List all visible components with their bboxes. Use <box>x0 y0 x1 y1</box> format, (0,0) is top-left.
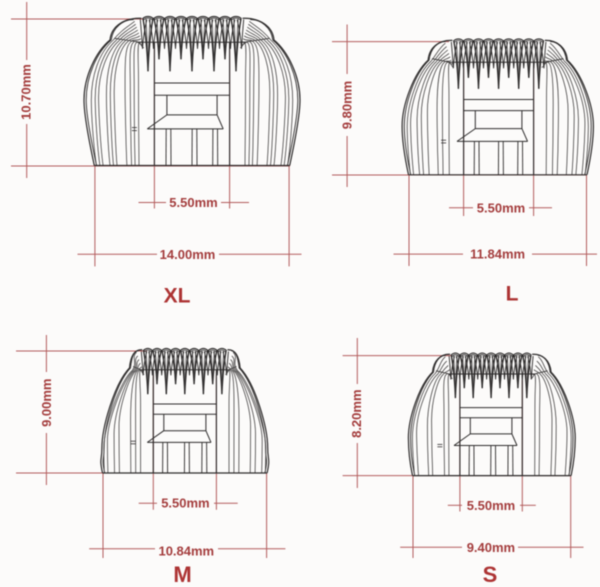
svg-text:5.50mm: 5.50mm <box>169 195 217 210</box>
svg-text:11.84mm: 11.84mm <box>470 247 525 262</box>
svg-text:XL: XL <box>164 285 191 308</box>
svg-text:9.80mm: 9.80mm <box>340 81 355 129</box>
svg-text:8.20mm: 8.20mm <box>349 389 364 437</box>
svg-text:10.70mm: 10.70mm <box>18 64 33 120</box>
svg-text:5.50mm: 5.50mm <box>161 496 209 511</box>
svg-text:9.00mm: 9.00mm <box>39 378 54 426</box>
svg-text:L: L <box>506 283 519 306</box>
svg-text:5.50mm: 5.50mm <box>467 498 515 513</box>
svg-text:9.40mm: 9.40mm <box>467 540 515 555</box>
svg-text:10.84mm: 10.84mm <box>158 544 214 559</box>
svg-text:14.00mm: 14.00mm <box>160 247 216 262</box>
svg-text:M: M <box>173 562 191 587</box>
svg-text:5.50mm: 5.50mm <box>477 200 525 215</box>
svg-text:S: S <box>483 562 498 587</box>
